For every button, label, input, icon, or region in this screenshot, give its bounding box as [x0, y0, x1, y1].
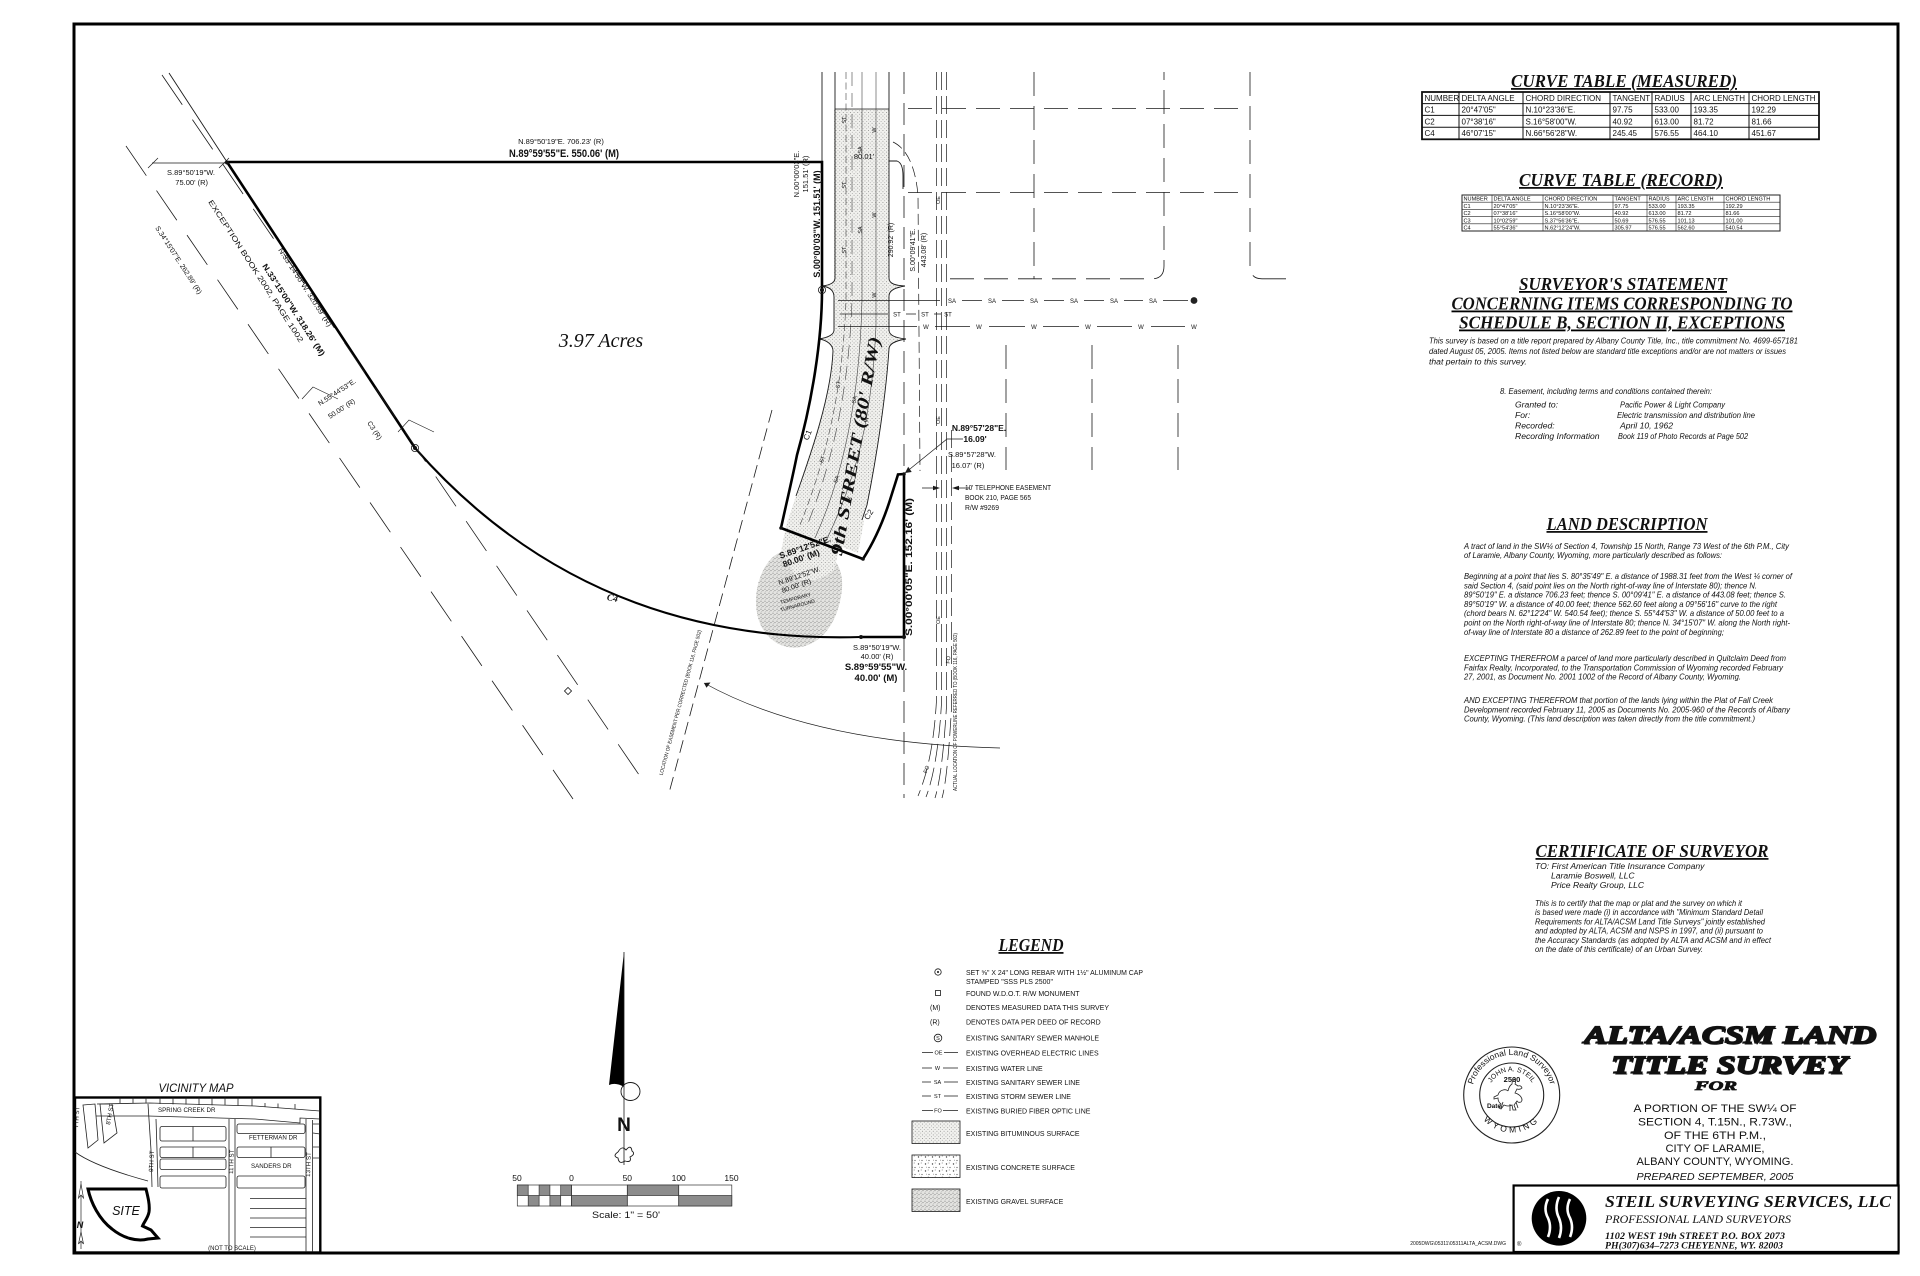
svg-text:W: W — [1191, 325, 1197, 331]
svg-text:ST: ST — [921, 313, 929, 319]
svg-text:DELTA ANGLE: DELTA ANGLE — [1494, 197, 1531, 203]
svg-text:point on the North right-of-wa: point on the North right-of-way line of … — [1463, 619, 1790, 628]
svg-text:NUMBER: NUMBER — [1425, 94, 1460, 103]
svg-text:27, 2001, as Document No. 2001: 27, 2001, as Document No. 2001 1002 of t… — [1463, 673, 1741, 682]
svg-text:Development recorded February: Development recorded February 11, 2005 a… — [1464, 705, 1791, 714]
svg-text:C4: C4 — [606, 593, 619, 605]
svg-text:STEIL SURVEYING SERVICES, L: STEIL SURVEYING SERVICES, LLC — [1605, 1192, 1892, 1211]
svg-text:(R): (R) — [930, 1020, 940, 1027]
svg-text:8. Easement, including terms: 8. Easement, including terms and conditi… — [1500, 386, 1713, 396]
svg-text:RADIUS: RADIUS — [1649, 197, 1670, 203]
svg-text:EXISTING BURIED FIBER OPTIC LI: EXISTING BURIED FIBER OPTIC LINE — [966, 1109, 1091, 1116]
svg-text:0: 0 — [569, 1173, 574, 1183]
svg-text:NUMBER: NUMBER — [1464, 197, 1488, 203]
svg-text:CHORD DIRECTION: CHORD DIRECTION — [1526, 94, 1602, 103]
svg-text:7TH ST: 7TH ST — [73, 1106, 81, 1128]
svg-text:613.00: 613.00 — [1655, 117, 1680, 126]
svg-text:W: W — [976, 325, 982, 331]
svg-text:W: W — [872, 127, 878, 133]
svg-text:50.00' (R): 50.00' (R) — [327, 398, 356, 420]
svg-text:OE: OE — [936, 616, 942, 624]
svg-text:ST: ST — [934, 1094, 942, 1100]
svg-text:VICINITY MAP: VICINITY MAP — [159, 1083, 234, 1095]
svg-text:C2: C2 — [1425, 117, 1436, 126]
svg-text:SA: SA — [934, 1080, 942, 1086]
svg-text:SA: SA — [1110, 299, 1118, 305]
svg-text:97.75: 97.75 — [1615, 204, 1629, 210]
svg-text:151.51' (R): 151.51' (R) — [801, 155, 810, 192]
svg-text:9TH ST: 9TH ST — [148, 1150, 156, 1172]
svg-text:S.89°57'28"W.: S.89°57'28"W. — [948, 450, 996, 459]
svg-text:EXISTING BITUMINOUS SURFACE: EXISTING BITUMINOUS SURFACE — [966, 1131, 1080, 1138]
svg-text:CHORD LENGTH: CHORD LENGTH — [1726, 197, 1771, 203]
svg-text:OE: OE — [936, 416, 942, 424]
svg-text:FO: FO — [946, 655, 953, 664]
svg-text:April 10, 1962: April 10, 1962 — [1619, 421, 1673, 431]
svg-text:STAMPED "SSS PLS 2500": STAMPED "SSS PLS 2500" — [966, 979, 1053, 986]
svg-text:EXISTING STORM SEWER LINE: EXISTING STORM SEWER LINE — [966, 1094, 1071, 1101]
svg-text:(NOT TO SCALE): (NOT TO SCALE) — [208, 1246, 256, 1252]
svg-text:576.55: 576.55 — [1649, 226, 1666, 232]
svg-text:SET ⅝" X 24" LONG REBAR WITH 1: SET ⅝" X 24" LONG REBAR WITH 1½" ALUMINU… — [966, 969, 1143, 977]
svg-text:C3 (R): C3 (R) — [365, 420, 382, 441]
svg-text:S.89°50'19"W.: S.89°50'19"W. — [167, 168, 215, 177]
svg-text:16.09': 16.09' — [963, 434, 986, 444]
svg-text:07°38'16": 07°38'16" — [1462, 117, 1496, 126]
svg-text:1102 WEST 19th STREET P.: 1102 WEST 19th STREET P.O. BOX 2073 — [1605, 1232, 1785, 1242]
svg-text:100: 100 — [672, 1173, 686, 1183]
svg-text:S.89°59'55"W.: S.89°59'55"W. — [845, 662, 907, 673]
svg-text:FOR: FOR — [1693, 1078, 1737, 1093]
svg-text:OE: OE — [935, 1051, 943, 1057]
svg-text:SCHEDULE B, SECTION II, EX: SCHEDULE B, SECTION II, EXCEPTIONS — [1459, 313, 1785, 333]
svg-text:CONCERNING ITEMS CORRESPONDI: CONCERNING ITEMS CORRESPONDING TO — [1452, 294, 1793, 314]
svg-text:97.75: 97.75 — [1613, 106, 1634, 115]
svg-text:CERTIFICATE OF SURVEYOR: CERTIFICATE OF SURVEYOR — [1536, 841, 1769, 861]
svg-text:BOOK 210, PAGE 565: BOOK 210, PAGE 565 — [965, 493, 1031, 502]
svg-text:Granted to:: Granted to: — [1515, 400, 1559, 410]
svg-text:Laramie Boswell, LLC: Laramie Boswell, LLC — [1551, 871, 1635, 881]
svg-text:(M): (M) — [930, 1005, 941, 1012]
svg-text:10' TELEPHONE EASEMENT: 10' TELEPHONE EASEMENT — [965, 483, 1051, 492]
svg-text:N.62°12'24"W.: N.62°12'24"W. — [1545, 226, 1582, 232]
svg-text:EXCEPTING THEREFROM a parcel o: EXCEPTING THEREFROM a parcel of land mor… — [1464, 654, 1786, 663]
svg-text:Pacific Power & Light Company: Pacific Power & Light Company — [1620, 400, 1726, 410]
svg-text:ST: ST — [944, 313, 952, 319]
svg-text:ALBANY COUNTY, WYOMING.: ALBANY COUNTY, WYOMING. — [1637, 1156, 1794, 1168]
svg-text:SA: SA — [948, 299, 956, 305]
svg-text:464.10: 464.10 — [1694, 129, 1719, 138]
svg-text:W: W — [935, 1066, 941, 1072]
svg-text:S.16°58'00"W.: S.16°58'00"W. — [1526, 117, 1577, 126]
svg-text:16.07' (R): 16.07' (R) — [952, 461, 985, 470]
svg-text:CURVE TABLE (MEASURED): CURVE TABLE (MEASURED) — [1511, 71, 1737, 92]
svg-text:ST: ST — [842, 246, 848, 254]
svg-text:ARC LENGTH: ARC LENGTH — [1678, 197, 1714, 203]
svg-text:150: 150 — [724, 1173, 738, 1183]
svg-text:SA: SA — [858, 146, 864, 154]
svg-text:SA: SA — [1030, 299, 1038, 305]
svg-text:ALTA/ACSM LAND: ALTA/ACSM LAND — [1581, 1022, 1876, 1049]
svg-text:This survey is based on a titl: This survey is based on a title report p… — [1429, 336, 1798, 346]
svg-text:(chord bears N. 62°12'24" W. 5: (chord bears N. 62°12'24" W. 540.54 feet… — [1464, 609, 1784, 618]
svg-text:Recorded:: Recorded: — [1515, 421, 1555, 431]
svg-text:C1: C1 — [1425, 106, 1436, 115]
svg-text:533.00: 533.00 — [1649, 204, 1666, 210]
svg-text:A PORTION OF THE SW¼ OF: A PORTION OF THE SW¼ OF — [1634, 1103, 1797, 1115]
svg-text:DENOTES DATA PER DEED OF RECOR: DENOTES DATA PER DEED OF RECORD — [966, 1020, 1101, 1027]
svg-text:305.97: 305.97 — [1615, 226, 1632, 232]
svg-text:20°47'05": 20°47'05" — [1462, 106, 1496, 115]
svg-text:CITY OF LARAMIE,: CITY OF LARAMIE, — [1666, 1143, 1765, 1155]
svg-text:TITLE SURVEY: TITLE SURVEY — [1611, 1052, 1851, 1079]
svg-text:EXISTING CONCRETE SURFACE: EXISTING CONCRETE SURFACE — [966, 1165, 1075, 1172]
svg-text:PH(307)634–7273 CHEYENNE, W: PH(307)634–7273 CHEYENNE, WY. 82003 — [1605, 1241, 1783, 1252]
svg-text:613.00: 613.00 — [1649, 211, 1666, 217]
svg-text:Beginning at a point that lies: Beginning at a point that lies S. 80°35'… — [1464, 572, 1793, 581]
svg-text:EXISTING OVERHEAD ELECTRIC LIN: EXISTING OVERHEAD ELECTRIC LINES — [966, 1051, 1099, 1058]
svg-text:ST: ST — [842, 181, 848, 189]
svg-text:DENOTES MEASURED DATA THIS SUR: DENOTES MEASURED DATA THIS SURVEY — [966, 1005, 1109, 1012]
svg-text:N.10°23'36"E.: N.10°23'36"E. — [1526, 106, 1576, 115]
svg-text:W: W — [872, 292, 878, 298]
svg-text:ARC LENGTH: ARC LENGTH — [1694, 94, 1746, 103]
svg-text:TANGENT: TANGENT — [1613, 94, 1651, 103]
svg-text:N.00°00'03"E.: N.00°00'03"E. — [792, 151, 801, 198]
svg-text:533.00: 533.00 — [1655, 106, 1680, 115]
svg-text:S.00°09'41"E.: S.00°09'41"E. — [909, 228, 917, 271]
svg-text:WYOMING: WYOMING — [1482, 1114, 1541, 1135]
svg-text:40.00' (R): 40.00' (R) — [861, 652, 894, 661]
svg-text:10°02'59": 10°02'59" — [1494, 218, 1518, 224]
svg-text:ST: ST — [842, 116, 848, 124]
svg-text:07°38'16": 07°38'16" — [1494, 211, 1518, 217]
svg-text:81.72: 81.72 — [1694, 117, 1715, 126]
svg-text:SECTION 4, T.15N., R.73W.,: SECTION 4, T.15N., R.73W., — [1638, 1117, 1792, 1129]
svg-text:192.29: 192.29 — [1752, 106, 1777, 115]
svg-text:Date: Date — [1487, 1103, 1501, 1110]
svg-text:50: 50 — [512, 1173, 522, 1183]
svg-text:R/W #9269: R/W #9269 — [965, 503, 999, 512]
svg-text:N: N — [617, 1115, 631, 1136]
svg-text:245.45: 245.45 — [1613, 129, 1638, 138]
svg-text:SA: SA — [1070, 299, 1078, 305]
svg-text:SANDERS DR: SANDERS DR — [251, 1163, 292, 1170]
svg-text:LOCATION OF EASEMENT PER C: LOCATION OF EASEMENT PER CORRECTED (BOOK… — [659, 629, 704, 776]
svg-text:ST: ST — [893, 313, 901, 319]
svg-text:40.92: 40.92 — [1613, 117, 1634, 126]
svg-text:193.35: 193.35 — [1678, 204, 1695, 210]
svg-text:N: N — [77, 1220, 84, 1230]
svg-text:SA: SA — [988, 299, 996, 305]
svg-text:3.97 Acres: 3.97 Acres — [558, 330, 644, 352]
svg-text:S: S — [936, 1036, 940, 1042]
svg-text:576.55: 576.55 — [1655, 129, 1680, 138]
svg-text:N.89°59'55"E. 550.06' (M): N.89°59'55"E. 550.06' (M) — [509, 148, 619, 160]
svg-text:Fairfax Realty, Incorporated,: Fairfax Realty, Incorporated, to the Tra… — [1464, 663, 1784, 672]
svg-text:75.00' (R): 75.00' (R) — [175, 178, 208, 187]
svg-text:13TH ST: 13TH ST — [305, 1152, 313, 1177]
svg-text:451.67: 451.67 — [1752, 129, 1777, 138]
svg-text:81.66: 81.66 — [1726, 211, 1740, 217]
svg-text:C4: C4 — [1464, 226, 1471, 232]
svg-text:S.00°00'05"E. 152.16' (M): S.00°00'05"E. 152.16' (M) — [904, 498, 915, 636]
svg-text:40.92: 40.92 — [1615, 211, 1629, 217]
svg-text:W: W — [1138, 325, 1144, 331]
svg-text:dated August 05, 2005. Items n: dated August 05, 2005. Items not listed … — [1429, 346, 1787, 356]
svg-text:W: W — [1085, 325, 1091, 331]
svg-text:55°54'36": 55°54'36" — [1494, 226, 1518, 232]
svg-text:562.60: 562.60 — [1678, 226, 1695, 232]
svg-text:2005DWG\05311\05311ALTA_ACSM.D: 2005DWG\05311\05311ALTA_ACSM.DWG — [1410, 1241, 1506, 1247]
svg-text:N.66°56'28"W.: N.66°56'28"W. — [1526, 129, 1578, 138]
svg-text:FO: FO — [923, 764, 931, 774]
svg-text:SA: SA — [1149, 299, 1157, 305]
svg-text:Recording Information: Recording Information — [1515, 431, 1600, 441]
svg-text:11TH ST: 11TH ST — [228, 1149, 236, 1174]
svg-text:CHORD LENGTH: CHORD LENGTH — [1752, 94, 1816, 103]
svg-text:101.00: 101.00 — [1726, 218, 1743, 224]
svg-text:County, Wyoming. (This land de: County, Wyoming. (This land description … — [1464, 715, 1755, 724]
svg-text:EXISTING WATER LINE: EXISTING WATER LINE — [966, 1066, 1043, 1073]
svg-text:SITE: SITE — [112, 1204, 140, 1218]
svg-text:SA: SA — [858, 226, 864, 234]
svg-text:LEGEND: LEGEND — [998, 935, 1064, 955]
svg-text:FETTERMAN DR: FETTERMAN DR — [249, 1135, 298, 1142]
svg-text:443.08' (R): 443.08' (R) — [921, 233, 928, 267]
svg-text:TANGENT: TANGENT — [1615, 197, 1642, 203]
svg-text:193.35: 193.35 — [1694, 106, 1719, 115]
svg-text:C3: C3 — [1464, 218, 1471, 224]
svg-text:C4: C4 — [1425, 129, 1436, 138]
svg-text:CHORD DIRECTION: CHORD DIRECTION — [1545, 197, 1598, 203]
svg-text:N.89°57'28"E.: N.89°57'28"E. — [952, 423, 1006, 433]
svg-text:A tract of land in the SW¼ of: A tract of land in the SW¼ of Section 4,… — [1463, 542, 1790, 551]
svg-text:540.54: 540.54 — [1726, 226, 1743, 232]
svg-text:FOUND W.D.O.T. R/W MONUMENT: FOUND W.D.O.T. R/W MONUMENT — [966, 991, 1080, 998]
svg-text:40.00' (M): 40.00' (M) — [855, 673, 898, 684]
svg-text:50: 50 — [623, 1173, 633, 1183]
svg-text:EXISTING SANITARY SEWER MANHOL: EXISTING SANITARY SEWER MANHOLE — [966, 1036, 1099, 1043]
svg-text:101.13: 101.13 — [1678, 218, 1695, 224]
svg-text:S.00°00'03"W. 151.51' (M): S.00°00'03"W. 151.51' (M) — [812, 170, 822, 277]
svg-text:80.01': 80.01' — [854, 152, 875, 161]
svg-text:TO: First American Title Insu: TO: First American Title Insurance Compa… — [1535, 861, 1705, 871]
svg-text:Book 119 of Photo Records at: Book 119 of Photo Records at Page 502 — [1618, 431, 1748, 441]
svg-text:that pertain to this survey.: that pertain to this survey. — [1429, 357, 1527, 367]
svg-text:SURVEYOR'S STATEMENT: SURVEYOR'S STATEMENT — [1519, 274, 1728, 294]
svg-text:AND EXCEPTING THEREFROM that p: AND EXCEPTING THEREFROM that portion of … — [1463, 696, 1774, 705]
svg-text:W: W — [1031, 325, 1037, 331]
svg-text:PROFESSIONAL LAND SURVEYORS: PROFESSIONAL LAND SURVEYORS — [1604, 1214, 1791, 1226]
svg-text:81.66: 81.66 — [1752, 117, 1773, 126]
svg-text:192.29: 192.29 — [1726, 204, 1743, 210]
svg-text:C2: C2 — [1464, 211, 1471, 217]
svg-text:89°50'19" W. a distance of 40.: 89°50'19" W. a distance of 40.00 feet; t… — [1464, 600, 1778, 609]
svg-text:W: W — [923, 325, 929, 331]
svg-text:Scale: 1" = 50': Scale: 1" = 50' — [592, 1210, 660, 1221]
svg-text:FO: FO — [934, 1109, 942, 1115]
svg-text:S.37°56'36"E.: S.37°56'36"E. — [1545, 218, 1580, 224]
svg-text:S.34°15'07"E. 262.89' (R): S.34°15'07"E. 262.89' (R) — [153, 225, 203, 296]
svg-text:CURVE TABLE (RECORD): CURVE TABLE (RECORD) — [1519, 170, 1723, 191]
svg-text:RADIUS: RADIUS — [1655, 94, 1685, 103]
svg-text:W: W — [872, 212, 878, 218]
svg-text:®: ® — [1517, 1241, 1522, 1248]
svg-text:50.69: 50.69 — [1615, 218, 1629, 224]
svg-text:SPRING CREEK DR: SPRING CREEK DR — [158, 1107, 216, 1114]
svg-text:20°47'05": 20°47'05" — [1494, 204, 1518, 210]
svg-text:290.92' (R): 290.92' (R) — [888, 223, 895, 257]
svg-text:of Laramie, Albany County, Wyo: of Laramie, Albany County, Wyoming, more… — [1464, 551, 1722, 560]
svg-text:OF THE 6TH P.M.,: OF THE 6TH P.M., — [1664, 1130, 1766, 1142]
svg-text:on the date of this certificat: on the date of this certificate) of an U… — [1535, 944, 1703, 954]
svg-text:46°07'15": 46°07'15" — [1462, 129, 1496, 138]
svg-text:LAND DESCRIPTION: LAND DESCRIPTION — [1546, 514, 1709, 534]
svg-text:S.89°50'19"W.: S.89°50'19"W. — [853, 643, 901, 652]
svg-text:ACTUAL LOCATION OF POWERLIN: ACTUAL LOCATION OF POWERLINE REFERRED TO… — [953, 633, 959, 791]
svg-text:576.55: 576.55 — [1649, 218, 1666, 224]
svg-text:N.89°50'19"E. 706.23' (R): N.89°50'19"E. 706.23' (R) — [518, 137, 604, 146]
svg-text:C1: C1 — [1464, 204, 1471, 210]
svg-text:OE: OE — [936, 196, 942, 204]
svg-text:EXISTING SANITARY SEWER LINE: EXISTING SANITARY SEWER LINE — [966, 1080, 1080, 1087]
svg-text:89°50'19" E. a distance 706.23: 89°50'19" E. a distance 706.23 feet; the… — [1464, 591, 1786, 600]
svg-text:N.10°23'36"E.: N.10°23'36"E. — [1545, 204, 1580, 210]
svg-text:EXISTING GRAVEL SURFACE: EXISTING GRAVEL SURFACE — [966, 1199, 1064, 1206]
svg-text:of-way line of Interstate 80 a: of-way line of Interstate 80 a distance … — [1464, 628, 1724, 637]
svg-text:Price Realty Group, LLC: Price Realty Group, LLC — [1551, 880, 1645, 890]
svg-text:For:: For: — [1515, 410, 1531, 420]
svg-text:DELTA ANGLE: DELTA ANGLE — [1462, 94, 1515, 103]
svg-text:said Section 4, (said point li: said Section 4, (said point lies on the … — [1464, 581, 1757, 590]
svg-text:81.72: 81.72 — [1678, 211, 1692, 217]
svg-text:PREPARED SEPTEMBER, 2005: PREPARED SEPTEMBER, 2005 — [1637, 1171, 1794, 1183]
svg-text:S.16°58'00"W.: S.16°58'00"W. — [1545, 211, 1581, 217]
svg-text:Electric transmission and dist: Electric transmission and distribution l… — [1617, 410, 1755, 420]
